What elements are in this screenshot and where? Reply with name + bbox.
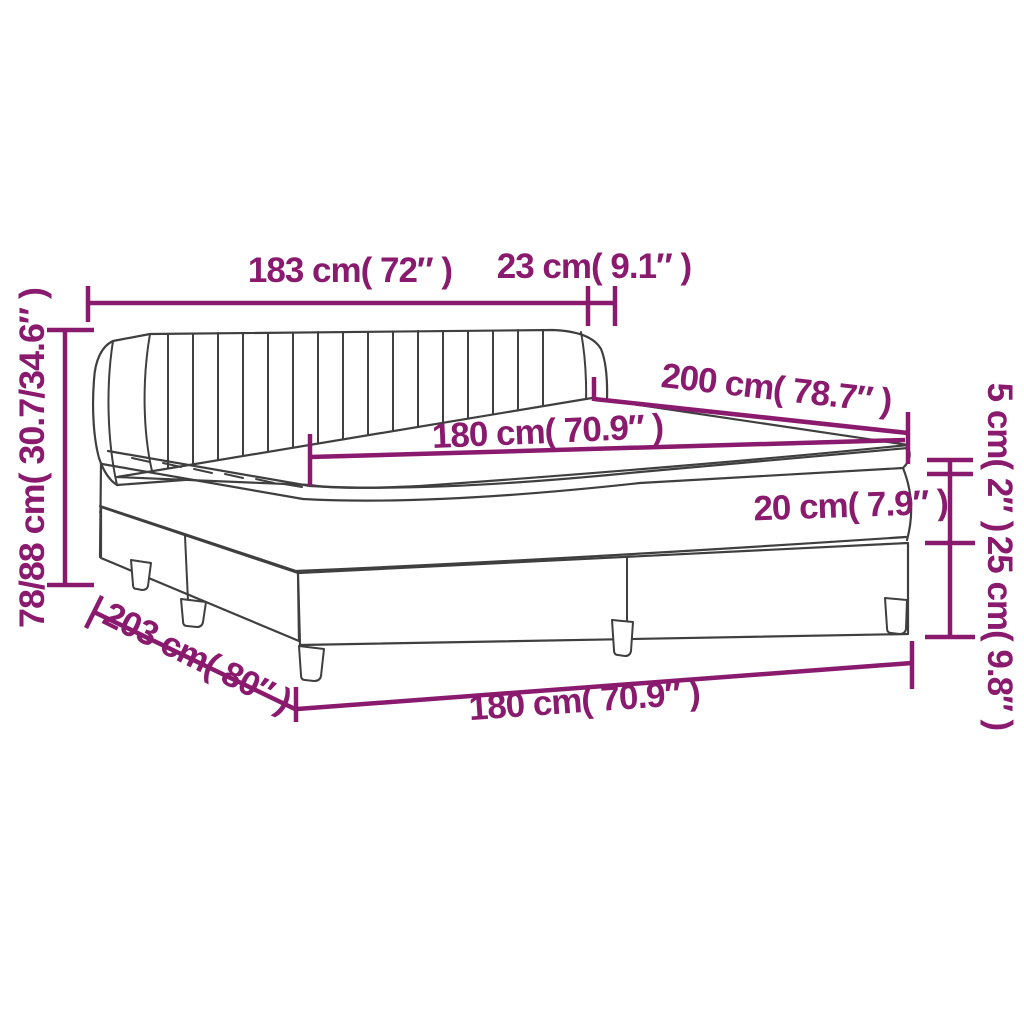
leg-front-middle: [612, 620, 633, 656]
leg-left-rear: [131, 560, 151, 590]
dim-line-total-height: [47, 330, 94, 585]
dim-label-mattress-height: 20 cm( 7.9″ ): [753, 483, 949, 529]
dim-label-headboard-wing-depth: 23 cm( 9.1″ ): [497, 247, 691, 286]
leg-left-middle: [181, 599, 206, 627]
dim-label-topper-height: 5 cm( 2″ ): [980, 383, 1019, 532]
dim-label-headboard-width: 183 cm( 72″ ): [248, 251, 452, 290]
diagram-canvas: 183 cm( 72″ ) 23 cm( 9.1″ ) 200 cm( 78.7…: [0, 0, 1024, 1024]
base-front-face: [298, 543, 908, 645]
dim-line-headboard-width: [88, 286, 615, 326]
dimension-labels: 183 cm( 72″ ) 23 cm( 9.1″ ) 200 cm( 78.7…: [13, 247, 1019, 730]
bed-dimension-diagram: 183 cm( 72″ ) 23 cm( 9.1″ ) 200 cm( 78.7…: [0, 0, 1024, 1024]
dim-label-base-height: 25 cm( 9.8″ ): [980, 536, 1019, 730]
leg-front-right: [885, 598, 907, 634]
dim-label-total-height: 78/88 cm( 30.7/34.6″ ): [13, 288, 52, 628]
leg-front-corner: [299, 646, 324, 681]
dim-label-frame-width: 180 cm( 70.9″ ): [467, 673, 701, 728]
